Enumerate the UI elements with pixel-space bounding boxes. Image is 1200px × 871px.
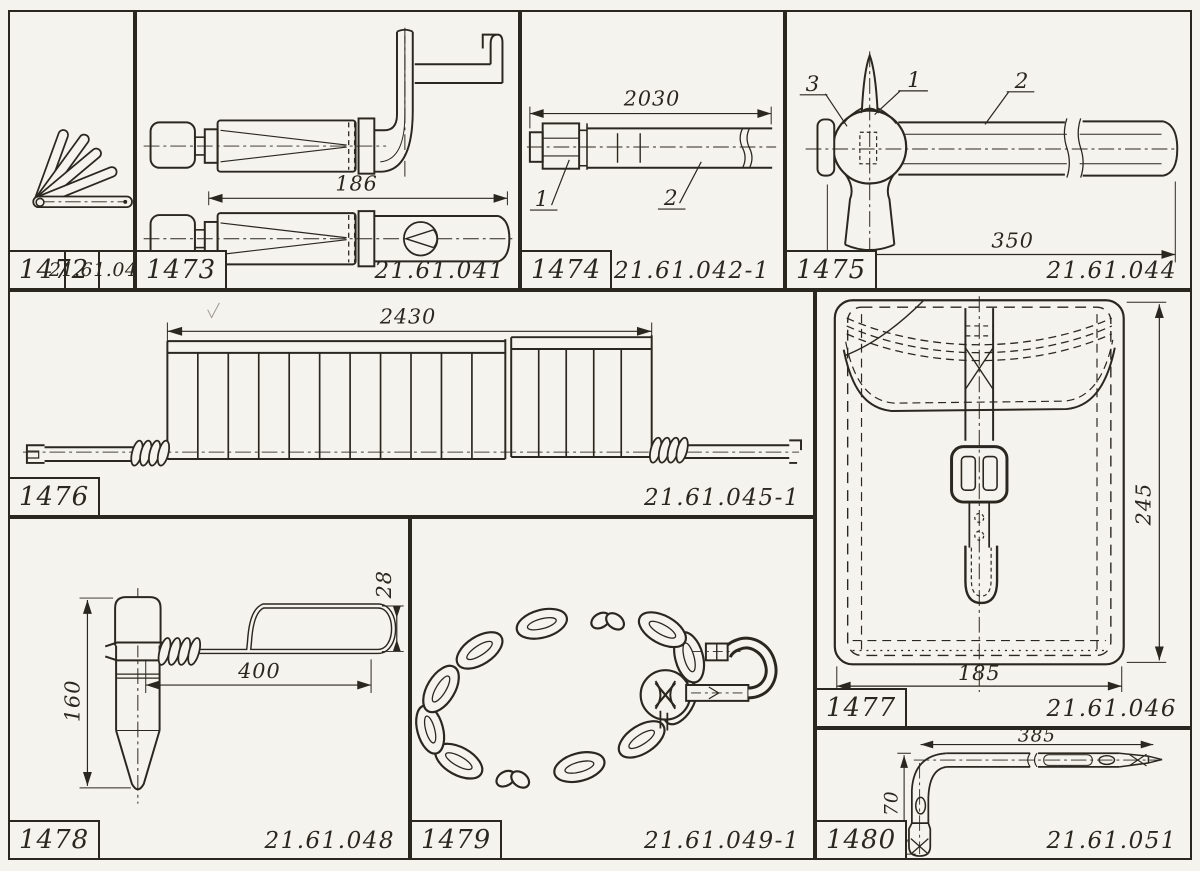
dim-185: 185 [958, 661, 1001, 685]
callout-1: 1 [907, 68, 921, 93]
slat-mat-drawing: 2430 [10, 292, 813, 515]
item-number: 1476 [19, 482, 89, 512]
panel-1479: 1479 21.61.049-1 [410, 517, 815, 860]
rod-drawing: 2030 1 2 [522, 12, 783, 288]
part-number-box: 21.61.040 [64, 250, 133, 288]
part-number: 21.61.046 [1046, 696, 1177, 722]
callout-3: 3 [806, 72, 820, 97]
dim-160: 160 [61, 680, 85, 723]
panel-1472: 1472 21.61.040 [8, 10, 135, 290]
gauge-set-drawing [10, 12, 133, 288]
dim-245: 245 [1131, 483, 1155, 527]
item-number-box: 1477 [817, 688, 907, 726]
callout-1: 1 [535, 187, 549, 212]
panel-1480: 385 170 1480 21.61.0 [815, 728, 1192, 860]
item-number: 1480 [826, 825, 896, 855]
panel-1478: 160 400 28 1478 21.61.048 [8, 517, 410, 860]
item-number-box: 1476 [10, 477, 100, 515]
item-number: 1474 [531, 255, 601, 285]
item-number-box: 1473 [137, 250, 227, 288]
callout-2: 2 [1014, 69, 1029, 94]
part-number: 21.61.041 [374, 258, 505, 284]
item-number: 1473 [146, 255, 216, 285]
callout-2: 2 [663, 186, 678, 211]
item-number-box: 1480 [817, 820, 907, 858]
item-number-box: 1478 [10, 820, 100, 858]
part-number: 21.61.042-1 [614, 258, 770, 284]
panel-1473: 186 1473 21.61.041 [135, 10, 520, 290]
tool-bag-drawing: 245 185 [817, 292, 1190, 726]
hammer-drawing: 3 1 2 350 [787, 12, 1190, 288]
panel-1477: 245 185 1477 21.61.046 [815, 290, 1192, 728]
item-number-box: 1475 [787, 250, 877, 288]
part-number: 21.61.049-1 [644, 828, 800, 854]
catalog-sheet: 1472 21.61.040 186 [0, 0, 1200, 871]
item-number-box: 1474 [522, 250, 612, 288]
pin-with-handle-drawing: 160 400 28 [10, 519, 408, 858]
crank-handle-drawing: 186 [137, 12, 518, 288]
item-number: 1477 [826, 693, 896, 723]
part-number: 21.61.048 [264, 828, 395, 854]
dim-186: 186 [335, 171, 377, 195]
dim-385: 385 [1018, 726, 1056, 747]
dim-2430: 2430 [379, 304, 436, 328]
part-number: 21.61.051 [1046, 828, 1177, 854]
part-number: 21.61.044 [1046, 258, 1177, 284]
chain-with-hook-drawing [412, 519, 813, 858]
panel-1474: 2030 1 2 1474 21.61.042-1 [520, 10, 785, 290]
dim-28: 28 [372, 570, 396, 599]
part-number: 21.61.045-1 [644, 485, 800, 511]
dim-350: 350 [991, 229, 1033, 253]
item-number: 1475 [796, 255, 866, 285]
dim-2030: 2030 [623, 87, 681, 111]
panel-1475: 3 1 2 350 1475 21.61.044 [785, 10, 1192, 290]
panel-1476: 2430 [8, 290, 815, 517]
item-number-box: 1479 [412, 820, 502, 858]
dim-400: 400 [237, 659, 281, 683]
item-number: 1478 [19, 825, 89, 855]
item-number: 1479 [421, 825, 491, 855]
